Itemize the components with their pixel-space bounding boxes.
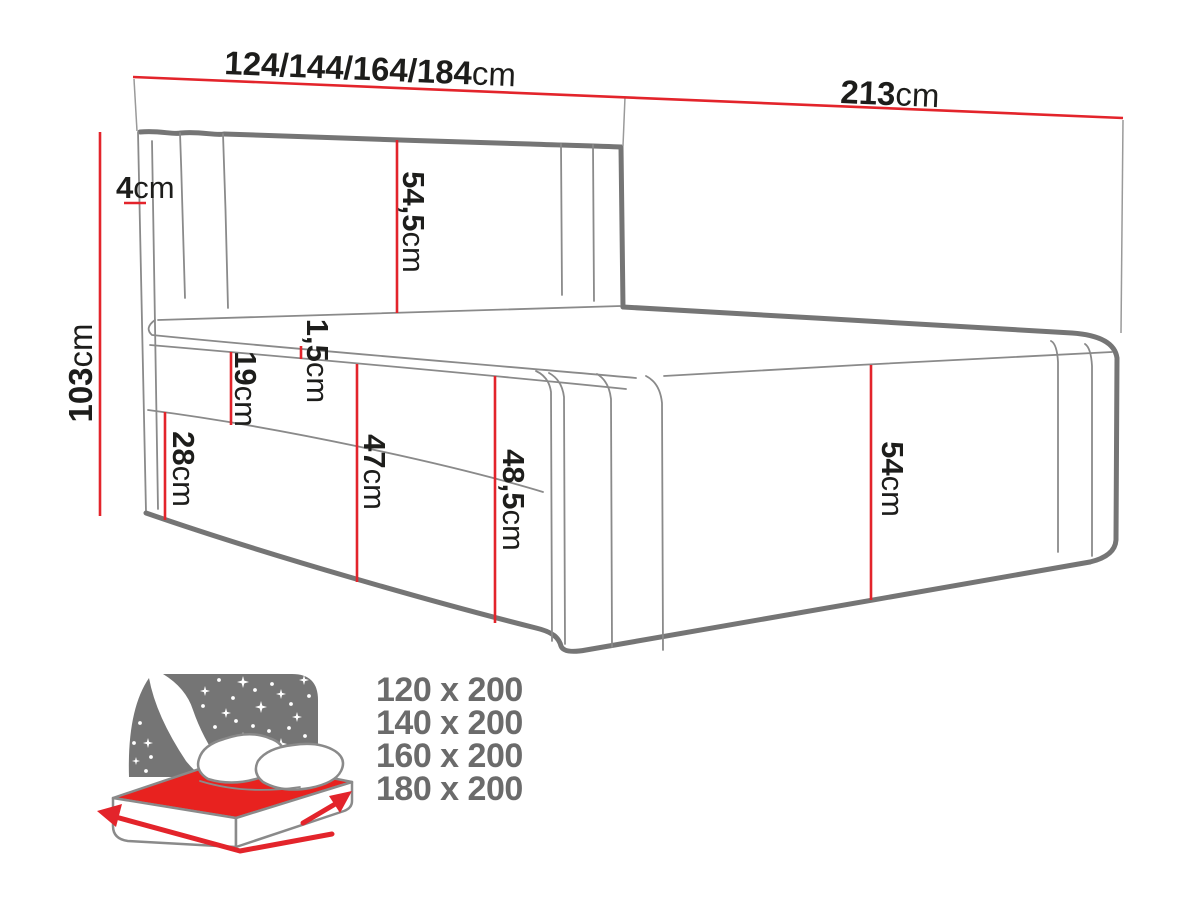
star-dot-icon	[149, 755, 153, 759]
night-sky-bed-icon	[97, 674, 352, 851]
headboard-right-edge	[621, 147, 623, 307]
label-box-height: 28cm	[166, 431, 201, 507]
bed-dimension-diagram: 124/144/164/184cm 213cm 103cm 4cm 54,5cm…	[0, 0, 1200, 900]
label-width-variants-unit: cm	[471, 54, 517, 93]
pillow-right	[256, 744, 343, 790]
headboard-seam	[180, 133, 185, 298]
label-side-total-height-value: 48,5	[496, 449, 531, 509]
label-foot-end-height-unit: cm	[875, 476, 910, 517]
label-under-piping-height: 47cm	[357, 434, 392, 510]
corner-post-seam	[597, 374, 612, 647]
label-headboard-thickness: 4cm	[116, 170, 175, 205]
star-dot-icon	[303, 734, 307, 738]
label-length: 213cm	[840, 73, 941, 114]
label-mattress-piping-value: 1,5	[300, 319, 335, 362]
foot-corner-seam	[1085, 344, 1092, 556]
label-mattress-piping: 1,5cm	[300, 319, 335, 403]
label-foot-end-height-value: 54	[875, 441, 910, 476]
label-under-piping-height-unit: cm	[357, 469, 392, 510]
size-option: 180 x 200	[376, 770, 523, 808]
label-mattress-height-unit: cm	[228, 386, 263, 427]
extension-lines	[134, 79, 1123, 333]
star-dot-icon	[217, 678, 221, 682]
headboard-top-edge	[140, 132, 621, 147]
label-length-value: 213	[840, 73, 897, 112]
label-headboard-above-mattress-unit: cm	[396, 232, 431, 273]
star-dot-icon	[251, 724, 255, 728]
star-dot-icon	[201, 704, 205, 708]
label-headboard-thickness-value: 4	[116, 170, 134, 205]
star-dot-icon	[253, 688, 257, 692]
label-total-height-unit: cm	[62, 323, 99, 367]
star-dot-icon	[138, 721, 142, 725]
star-icon	[166, 680, 174, 688]
label-width-variants-value: 124/144/164/184	[224, 44, 474, 91]
label-headboard-above-mattress-value: 54,5	[396, 171, 431, 231]
label-mattress-piping-unit: cm	[300, 362, 335, 403]
label-box-height-value: 28	[166, 431, 201, 465]
bed-drawing: 124/144/164/184cm 213cm 103cm 4cm 54,5cm…	[62, 44, 1123, 651]
label-total-height: 103cm	[62, 323, 99, 422]
label-under-piping-height-value: 47	[357, 434, 392, 468]
bed-bottom-contour	[146, 513, 1090, 651]
mattress-piping-line	[150, 345, 626, 389]
mattress-near-top-edge-right	[664, 352, 1112, 376]
star-dot-icon	[270, 682, 274, 686]
label-total-height-value: 103	[62, 367, 99, 422]
base-top-edge	[148, 410, 543, 492]
star-dot-icon	[287, 726, 291, 730]
foot-corner-seam	[1051, 341, 1058, 552]
star-icon	[190, 726, 198, 734]
extension-line-right	[1121, 120, 1123, 333]
label-headboard-above-mattress: 54,5cm	[396, 171, 431, 273]
label-foot-end-height: 54cm	[875, 441, 910, 517]
label-length-unit: cm	[895, 75, 941, 114]
label-box-height-unit: cm	[166, 466, 201, 507]
label-width-variants: 124/144/164/184cm	[224, 44, 517, 93]
bed-body	[146, 307, 1117, 651]
star-dot-icon	[234, 719, 238, 723]
label-side-total-height: 48,5cm	[496, 449, 531, 551]
star-dot-icon	[159, 698, 163, 702]
headboard-seam	[561, 144, 562, 295]
star-dot-icon	[267, 729, 271, 733]
headboard-seam	[223, 134, 228, 308]
headboard-seam	[593, 145, 594, 301]
size-options-list: 120 x 200 140 x 200 160 x 200 180 x 200	[376, 671, 523, 808]
extension-line-mid	[623, 97, 625, 146]
star-dot-icon	[213, 725, 217, 729]
corner-post-seam	[646, 376, 663, 650]
star-dot-icon	[144, 769, 148, 773]
label-side-total-height-unit: cm	[496, 510, 531, 551]
label-mattress-height: 19cm	[228, 351, 263, 427]
dimension-labels: 124/144/164/184cm 213cm 103cm 4cm 54,5cm…	[62, 44, 940, 551]
star-dot-icon	[231, 696, 235, 700]
label-headboard-thickness-unit: cm	[133, 170, 174, 205]
corner-post-seam	[536, 371, 552, 641]
mattress-near-top-edge	[149, 320, 636, 378]
star-dot-icon	[307, 694, 311, 698]
extension-line-left	[134, 79, 137, 131]
star-dot-icon	[289, 702, 293, 706]
label-mattress-height-value: 19	[228, 351, 263, 385]
diagram-canvas: 124/144/164/184cm 213cm 103cm 4cm 54,5cm…	[0, 0, 1200, 900]
star-dot-icon	[132, 741, 136, 745]
